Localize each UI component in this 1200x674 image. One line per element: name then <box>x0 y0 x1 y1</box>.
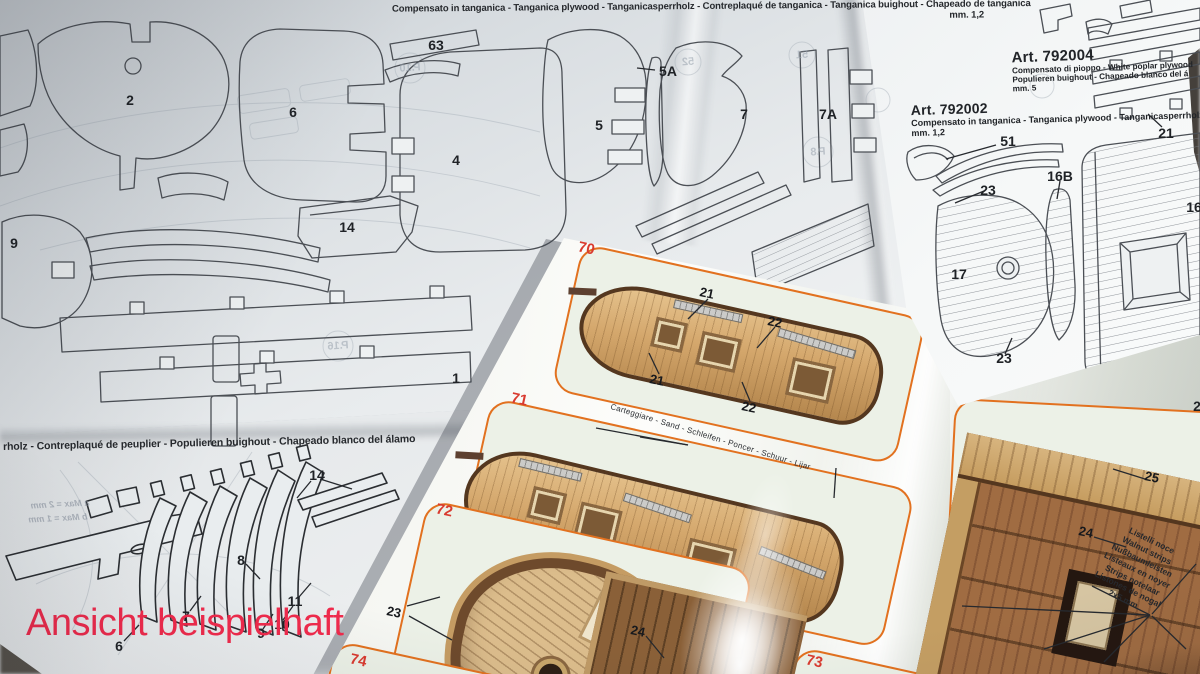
ghost-label-p8: P.8 <box>810 145 826 158</box>
watermark-text: Ansicht beispielhaft <box>26 602 343 645</box>
part-label-9: 9 <box>10 235 18 251</box>
part-label-17: 17 <box>951 266 967 282</box>
part-label-23b: 23 <box>996 350 1012 366</box>
callout-21-bottom: 21 <box>648 371 665 389</box>
part-label-51: 51 <box>1000 133 1016 149</box>
ghost-label-p16: P.16 <box>327 339 349 352</box>
callout-23: 23 <box>385 603 402 621</box>
part-label-4: 4 <box>452 152 460 168</box>
part-label-7: 7 <box>740 106 748 122</box>
ghost-label-52: 52 <box>681 56 694 69</box>
part-label-21: 21 <box>1158 125 1174 141</box>
part-label-5: 5 <box>595 117 603 133</box>
ghost-label-51: 51 <box>795 49 808 62</box>
assembly-label-14: 14 <box>309 467 325 483</box>
callout-22-top: 22 <box>766 313 783 331</box>
part-label-2: 2 <box>126 92 134 108</box>
step-number-74: 74 <box>348 650 368 670</box>
part-label-7A: 7A <box>819 106 837 122</box>
part-label-16B: 16B <box>1047 168 1073 184</box>
part-label-5A: 5A <box>659 63 677 79</box>
part-label-1-partial: 1 <box>452 370 460 386</box>
ghost-label-p10: P.10 <box>399 61 421 74</box>
callout-21-top: 21 <box>698 284 715 302</box>
part-label-23a: 23 <box>980 182 996 198</box>
photo-ship-model-plans-and-booklet: Compensato in tanganica - Tanganica plyw… <box>0 0 1200 674</box>
part-label-2-partial: 2 <box>1193 398 1200 414</box>
part-label-14: 14 <box>339 219 355 235</box>
article-block-792004: Art. 792004 Compensato di pioppo - White… <box>1011 43 1200 94</box>
part-label-16: 16 <box>1186 199 1200 215</box>
right-page-panel <box>939 398 1200 674</box>
part-label-63: 63 <box>428 37 444 53</box>
assembly-label-8: 8 <box>237 552 245 568</box>
part-label-6: 6 <box>289 104 297 120</box>
callout-24-left: 24 <box>629 622 646 640</box>
callout-25: 25 <box>1143 468 1160 486</box>
callout-22-bottom: 22 <box>740 398 757 416</box>
